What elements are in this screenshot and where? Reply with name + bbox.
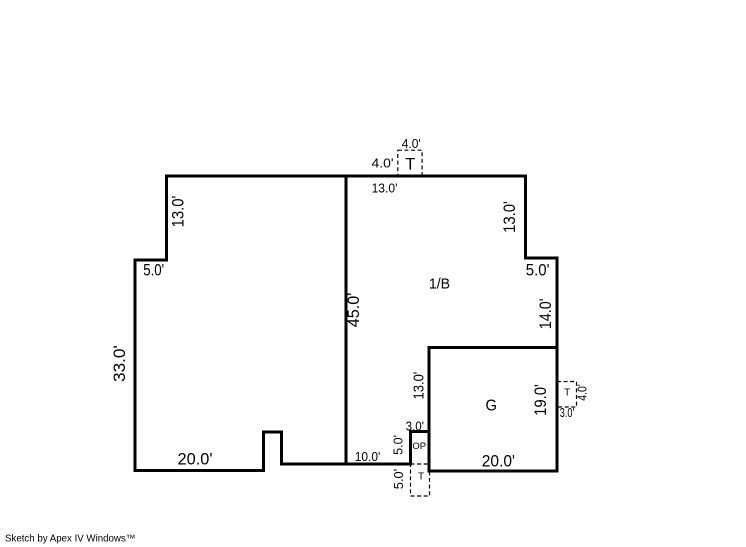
svg-text:13.0': 13.0' xyxy=(372,182,398,196)
svg-text:T: T xyxy=(564,388,570,399)
svg-text:13.0': 13.0' xyxy=(501,201,519,233)
svg-text:13.0': 13.0' xyxy=(170,196,188,228)
svg-text:4.0': 4.0' xyxy=(576,384,590,401)
svg-text:19.0': 19.0' xyxy=(532,384,550,416)
svg-text:5.0': 5.0' xyxy=(390,435,405,455)
svg-text:20.0': 20.0' xyxy=(178,451,213,469)
svg-text:13.0': 13.0' xyxy=(411,372,428,400)
svg-text:14.0': 14.0' xyxy=(537,299,555,330)
svg-text:45.0': 45.0' xyxy=(345,293,363,328)
svg-text:33.0': 33.0' xyxy=(111,345,129,382)
svg-text:4.0': 4.0' xyxy=(402,137,421,151)
svg-text:Sketch by Apex IV Windows™: Sketch by Apex IV Windows™ xyxy=(5,534,136,545)
svg-text:3.0': 3.0' xyxy=(406,420,424,434)
svg-text:G: G xyxy=(486,398,498,415)
svg-text:3.0': 3.0' xyxy=(560,406,575,420)
svg-text:T: T xyxy=(418,472,424,483)
svg-text:5.0': 5.0' xyxy=(391,469,406,489)
svg-text:T: T xyxy=(405,156,415,174)
svg-text:5.0': 5.0' xyxy=(143,262,164,280)
svg-text:5.0': 5.0' xyxy=(526,262,550,280)
svg-text:1/B: 1/B xyxy=(429,276,450,293)
svg-text:OP: OP xyxy=(412,441,426,452)
svg-text:20.0': 20.0' xyxy=(482,452,515,470)
svg-text:4.0': 4.0' xyxy=(372,157,394,171)
svg-text:10.0': 10.0' xyxy=(355,450,381,464)
